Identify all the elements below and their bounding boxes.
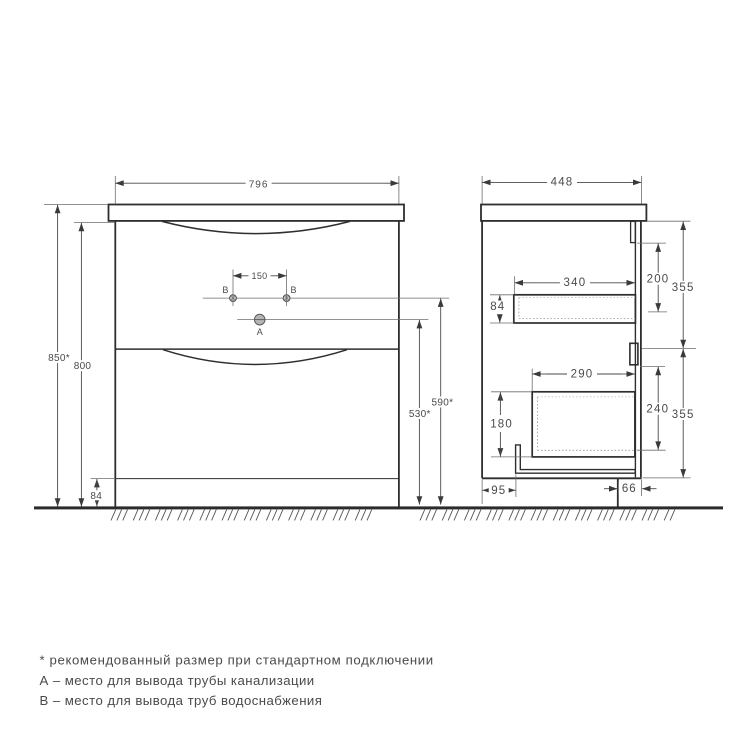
svg-text:* рекомендованный размер при с: * рекомендованный размер при стандартном…: [40, 653, 434, 668]
svg-text:355: 355: [672, 282, 695, 294]
svg-text:66: 66: [622, 483, 637, 495]
svg-text:590*: 590*: [432, 398, 454, 409]
svg-text:84: 84: [490, 301, 505, 313]
svg-text:355: 355: [672, 409, 695, 421]
svg-text:B: B: [222, 285, 228, 295]
svg-text:530*: 530*: [409, 409, 431, 420]
svg-text:800: 800: [74, 361, 92, 372]
svg-text:850*: 850*: [48, 353, 70, 364]
svg-text:180: 180: [490, 419, 513, 431]
svg-text:290: 290: [571, 369, 594, 381]
svg-text:796: 796: [249, 180, 269, 191]
svg-text:А – место для вывода трубы кан: А – место для вывода трубы канализации: [40, 673, 315, 688]
svg-text:B: B: [290, 285, 296, 295]
svg-text:84: 84: [90, 491, 102, 502]
svg-text:200: 200: [647, 274, 670, 286]
svg-text:95: 95: [491, 485, 506, 497]
svg-text:240: 240: [646, 404, 669, 416]
svg-text:340: 340: [564, 277, 587, 289]
svg-text:В – место для вывода труб водо: В – место для вывода труб водоснабжения: [40, 693, 323, 708]
svg-text:448: 448: [551, 177, 574, 189]
svg-text:150: 150: [252, 271, 268, 281]
svg-text:A: A: [257, 327, 263, 337]
